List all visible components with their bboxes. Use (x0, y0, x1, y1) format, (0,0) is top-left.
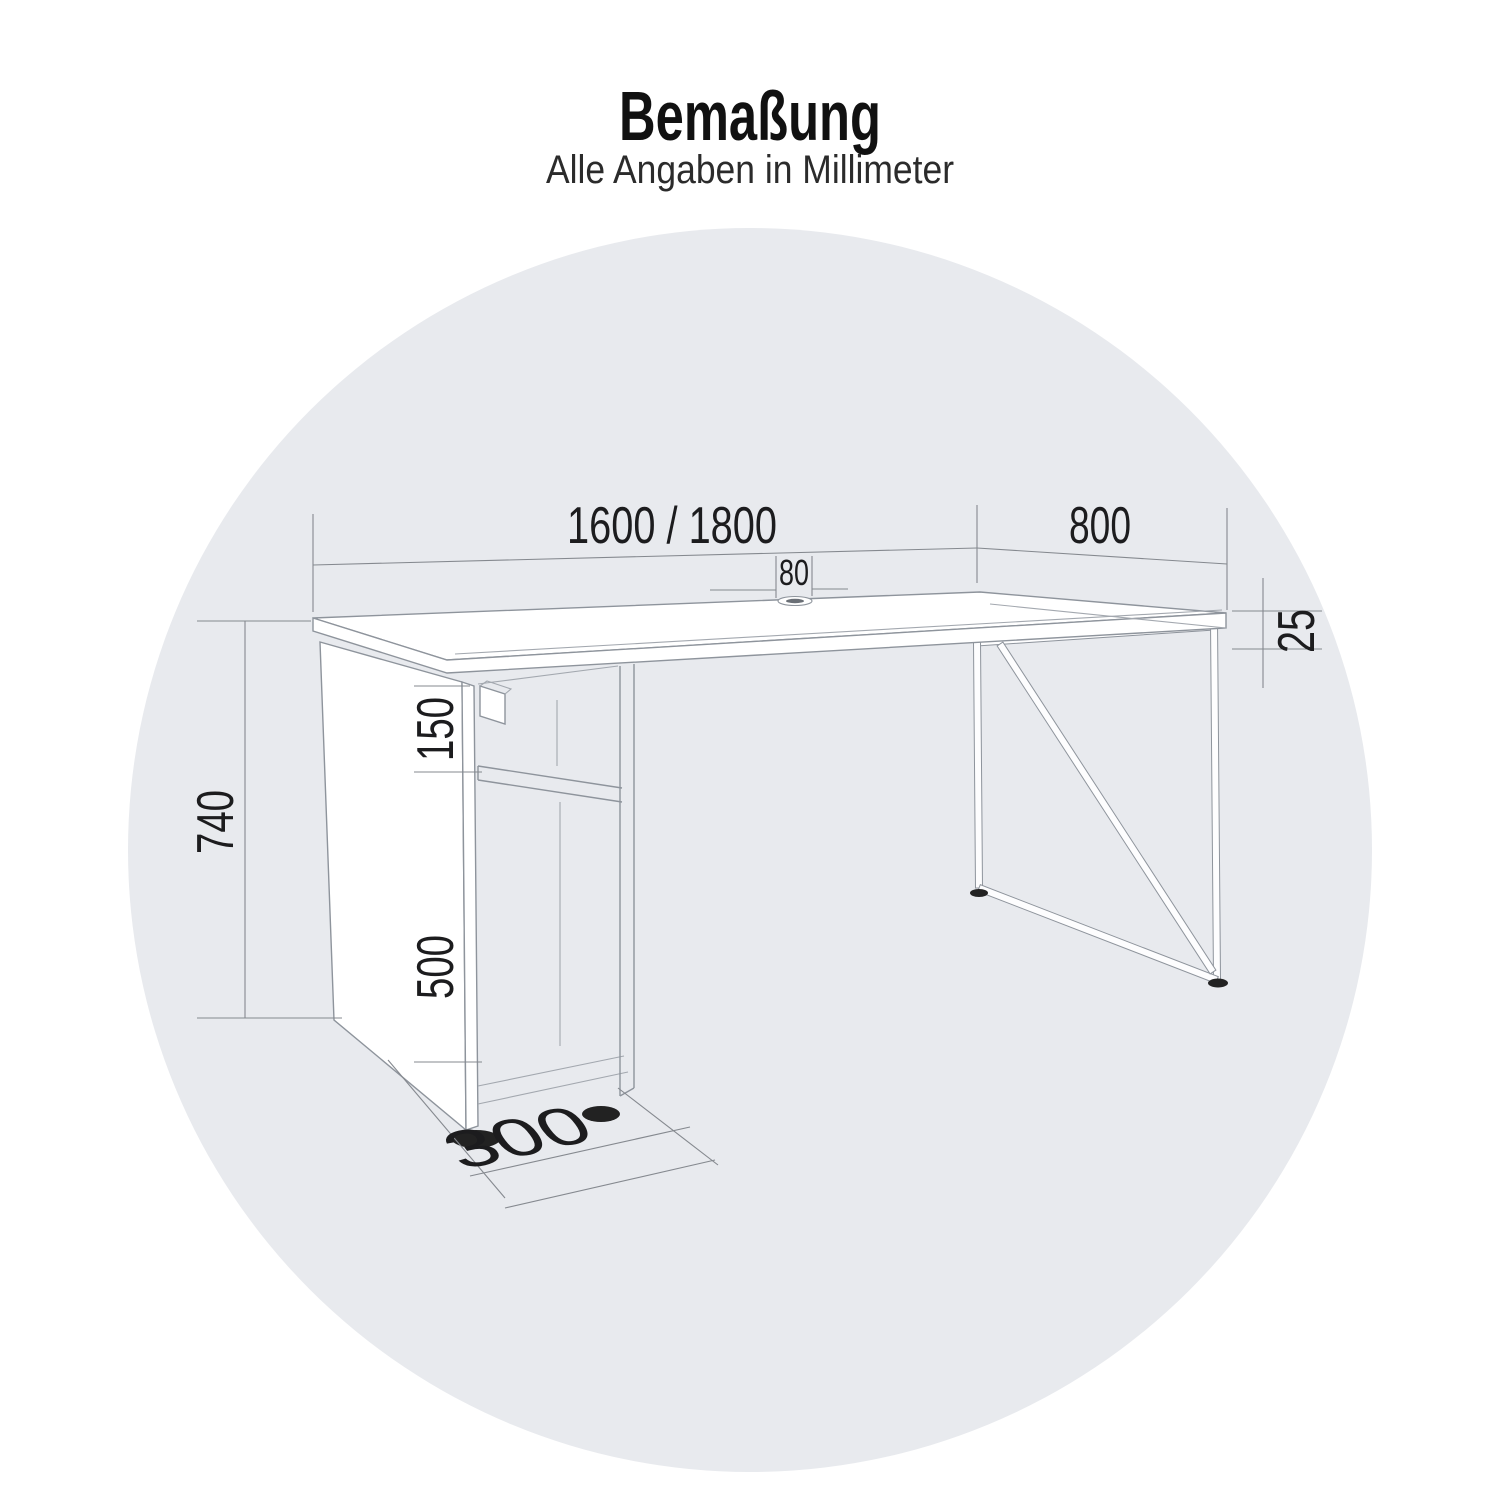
dim-grommet-label: 80 (779, 552, 809, 593)
page-subtitle: Alle Angaben in Millimeter (546, 148, 954, 192)
leg-front-foot (970, 889, 988, 897)
dim-compartment-label: 500 (407, 935, 465, 999)
cable-grommet (778, 597, 812, 606)
background-circle (128, 228, 1372, 1472)
dim-width-label: 1600 / 1800 (567, 497, 777, 555)
dim-shelf-label: 150 (407, 697, 465, 761)
dim-depth-label: 800 (1069, 497, 1131, 555)
leg-front-tube (974, 642, 983, 888)
technical-drawing-canvas: Bemaßung Alle Angaben in Millimeter (0, 0, 1500, 1500)
leg-back-foot (1208, 979, 1228, 988)
dimension-diagram-page: Bemaßung Alle Angaben in Millimeter (0, 0, 1500, 1500)
dim-height-label: 740 (187, 790, 245, 854)
page-title: Bemaßung (619, 77, 881, 155)
pedestal-right-foot (582, 1106, 620, 1122)
dim-thickness-label: 25 (1268, 609, 1326, 653)
